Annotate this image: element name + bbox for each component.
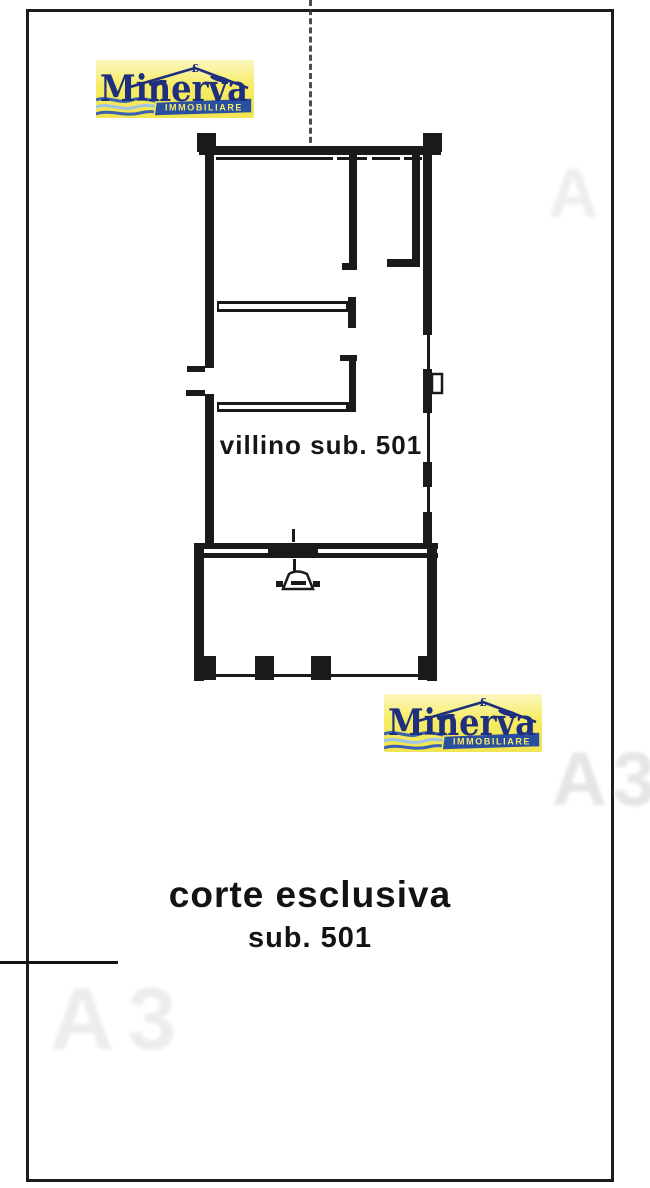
court-sub-label: sub. 501 (150, 922, 470, 955)
watermark-a3-top: A (548, 158, 599, 228)
villino-walls (186, 133, 442, 546)
right-wall-projection (432, 374, 442, 393)
logo-brand: Minerva (100, 68, 248, 110)
floor-plan-drawing: villino sub. 501 (183, 128, 447, 684)
logo-brand: Minerva (388, 702, 536, 744)
villino-label: villino sub. 501 (220, 430, 422, 460)
minerva-logo-graphic: £ IMMOBILIARE Minerva (96, 60, 254, 118)
court-label: corte esclusiva (150, 874, 470, 916)
minerva-logo-middle: £ IMMOBILIARE Minerva (384, 694, 542, 752)
porch-walls (194, 529, 438, 681)
floor-plan: villino sub. 501 (183, 128, 447, 684)
court-labels: corte esclusiva sub. 501 (150, 874, 470, 955)
margin-line (0, 961, 118, 964)
minerva-logo-graphic: £ IMMOBILIARE Minerva (384, 694, 542, 752)
watermark-a3-bottom: A3 (50, 975, 191, 1063)
watermark-a3-middle: A3 (552, 742, 650, 818)
minerva-logo-top: £ IMMOBILIARE Minerva (96, 60, 254, 118)
entrance-canopy-icon (276, 572, 320, 590)
villino-wall-cores (219, 304, 346, 409)
